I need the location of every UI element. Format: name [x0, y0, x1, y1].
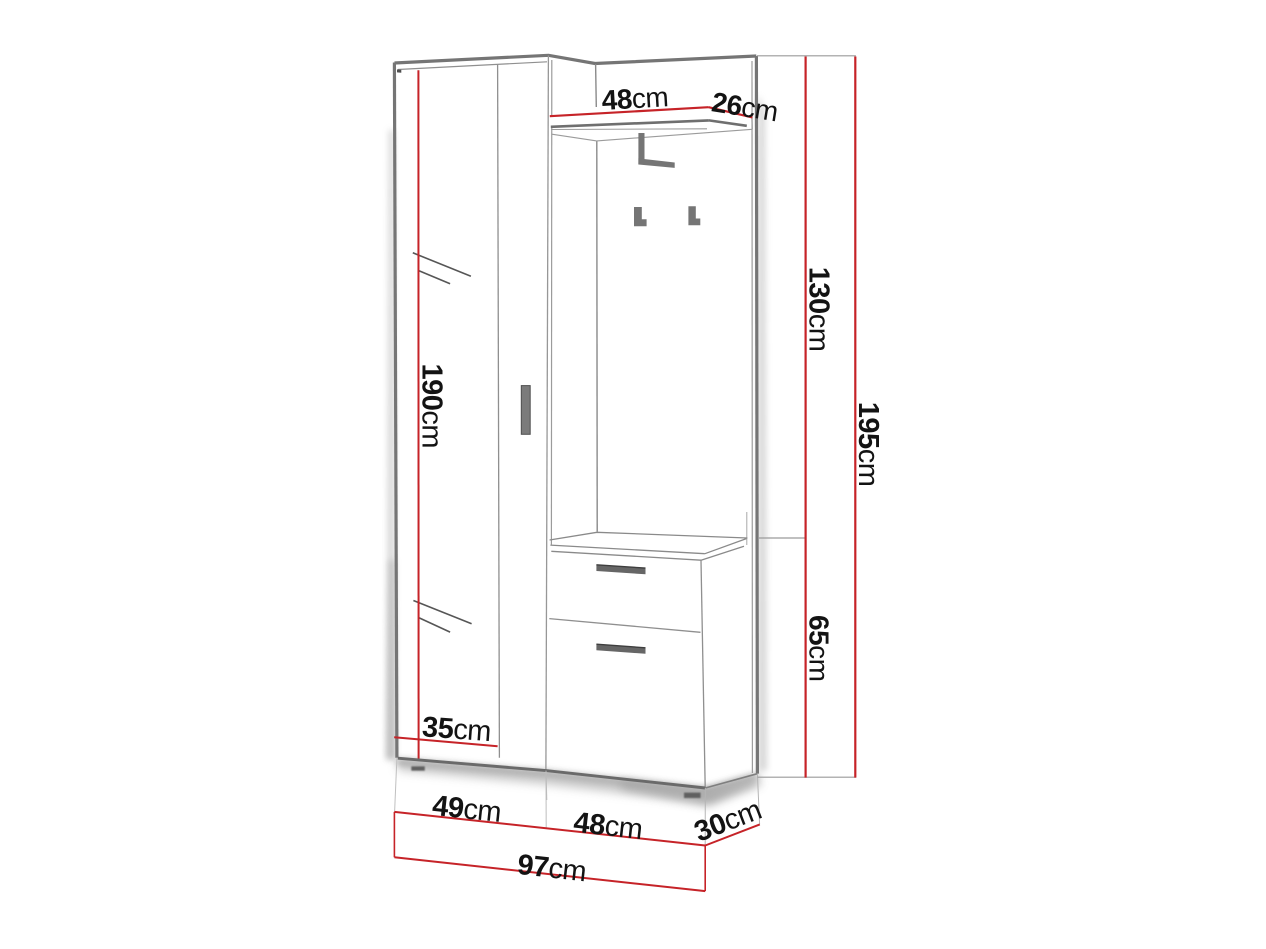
svg-text:190cm: 190cm	[416, 364, 448, 449]
svg-text:130cm: 130cm	[802, 267, 834, 352]
svg-text:35cm: 35cm	[421, 711, 492, 748]
svg-text:48cm: 48cm	[601, 81, 669, 116]
svg-text:195cm: 195cm	[852, 402, 884, 487]
svg-text:65cm: 65cm	[803, 615, 834, 681]
